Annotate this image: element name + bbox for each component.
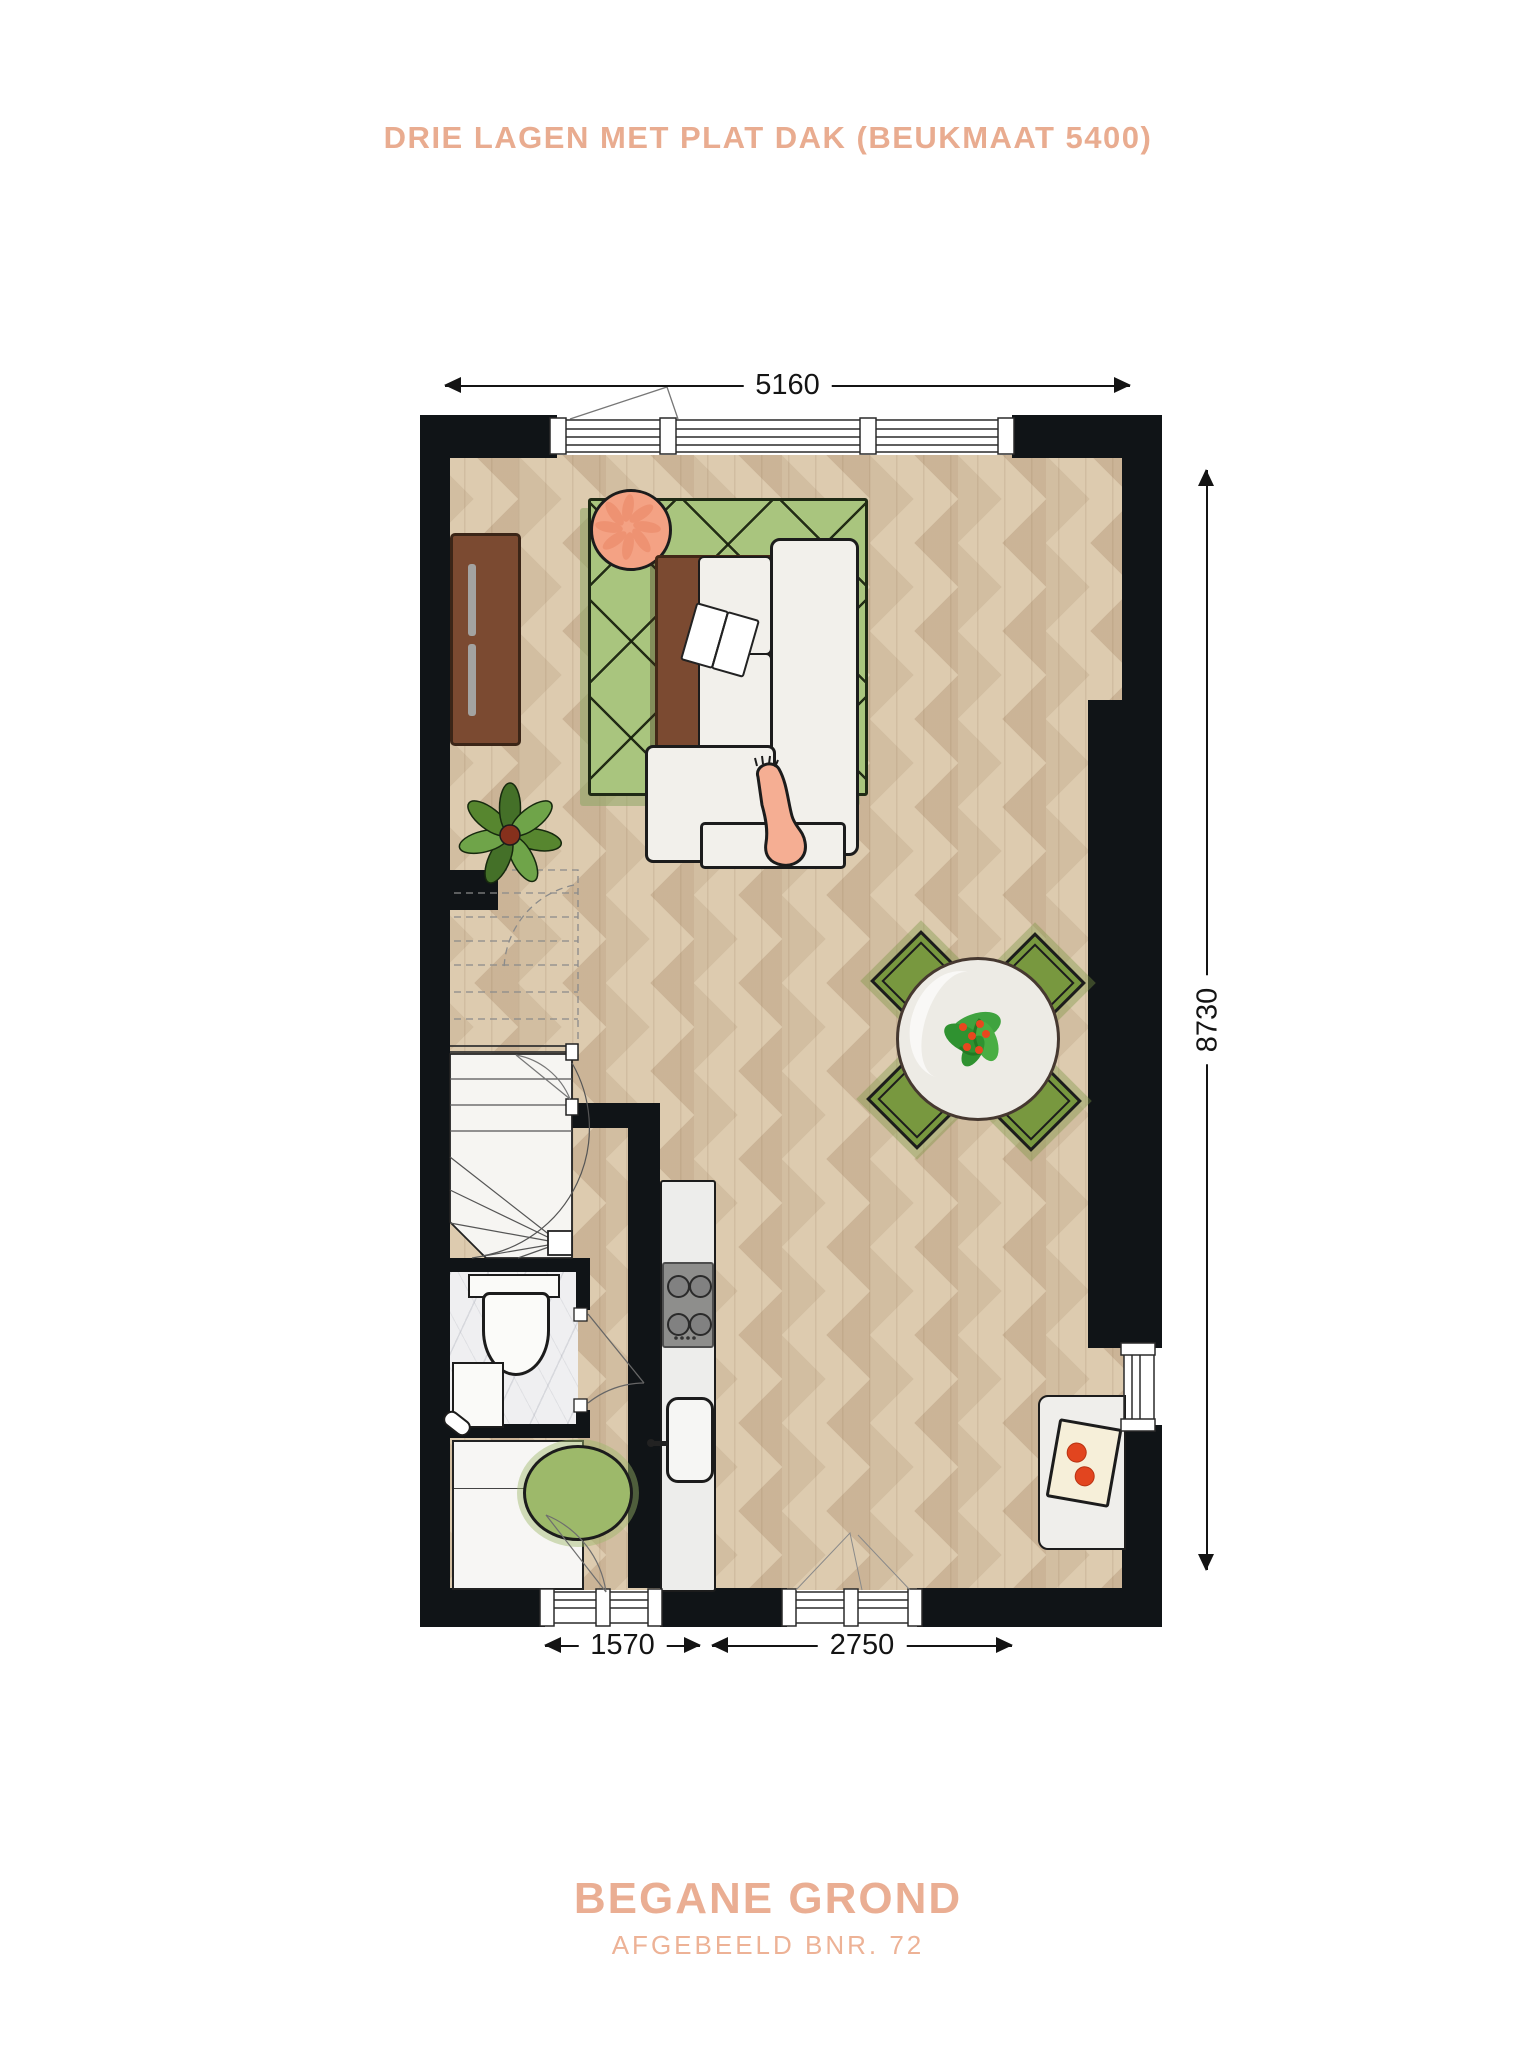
dimension-right: 8730	[1206, 470, 1208, 1570]
dimension-top-label: 5160	[743, 369, 832, 402]
toilet-door-swing	[574, 1308, 644, 1412]
dimension-bottom-right-label: 2750	[818, 1629, 907, 1662]
stove-knobs	[674, 1336, 696, 1340]
linework-overlay	[420, 415, 1162, 1627]
floor-name: BEGANE GROND	[0, 1874, 1536, 1924]
staircase	[450, 870, 589, 1258]
stair-newel	[548, 1231, 572, 1255]
pouf-swirl	[594, 493, 661, 560]
window-tilt-swing	[570, 387, 678, 419]
dimension-bottom-right: 2750	[712, 1645, 1012, 1647]
dimension-bottom-left: 1570	[545, 1645, 700, 1647]
right-window-frame	[1121, 1343, 1155, 1431]
person-legs	[755, 756, 805, 865]
floor-plan	[420, 415, 1162, 1627]
top-window-frame	[550, 418, 1014, 454]
stairs-lower-flight	[450, 1054, 572, 1258]
bottom-window-tilt	[796, 1533, 910, 1590]
stairs-upper-dashed	[454, 870, 578, 1045]
sink-faucet	[647, 1439, 668, 1447]
entrance-door-swing	[546, 1515, 606, 1592]
page: { "header": { "title": "DRIE LAGEN MET P…	[0, 0, 1536, 2048]
table-centerpiece	[939, 1006, 1005, 1071]
dimension-right-label: 8730	[1192, 976, 1225, 1065]
door-post	[566, 1099, 578, 1115]
floor-subtitle: AFGEBEELD BNR. 72	[0, 1930, 1536, 1961]
potted-plant	[457, 783, 563, 887]
entrance-door-frame	[540, 1589, 662, 1626]
bottom-window-frame	[782, 1589, 922, 1626]
dimension-top: 5160	[445, 385, 1130, 387]
dimension-bottom-left-label: 1570	[578, 1629, 667, 1662]
open-book	[681, 603, 759, 676]
page-title: DRIE LAGEN MET PLAT DAK (BEUKMAAT 5400)	[0, 120, 1536, 156]
stair-post	[566, 1044, 578, 1060]
